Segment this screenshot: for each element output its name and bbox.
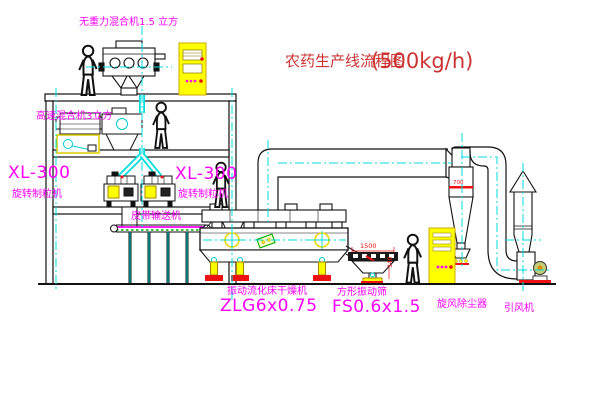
label-second-mixer: 高速混合机3立方 [36, 109, 112, 122]
dim-sieve-height: 340 [387, 256, 394, 268]
worker-figure [153, 103, 169, 148]
process-flow-diagram: 农药生产线流程图 (500kg/h) 无重力混合机1.5 立方 高速混合机3立方… [0, 0, 600, 403]
label-granulator-right-model: XL-300 [175, 164, 237, 184]
exhaust-duct [258, 149, 462, 210]
page-title-capacity: (500kg/h) [371, 49, 473, 73]
worker-figure [404, 235, 421, 283]
label-sieve-model: FS0.6x1.5 [332, 297, 421, 317]
label-top-mixer: 无重力混合机1.5 立方 [79, 15, 178, 28]
label-granulator-right-name: 旋转制粒机 [178, 187, 228, 200]
control-cabinet-lower [429, 228, 455, 284]
diagram-canvas: 农药生产线流程图 (500kg/h) 无重力混合机1.5 立方 高速混合机3立方… [0, 0, 600, 403]
label-granulator-left-name: 旋转制粒机 [12, 187, 62, 200]
label-belt-conveyor: 皮带输送机 [131, 209, 181, 222]
label-dryer-model: ZLG6x0.75 [220, 296, 318, 316]
induced-draft-fan [517, 252, 551, 284]
fluid-bed-dryer [200, 204, 360, 281]
granulator-left [104, 172, 138, 207]
dim-sieve-length: 1500 [360, 242, 377, 250]
granulator-right [141, 172, 175, 207]
label-cyclone: 旋风除尘器 [437, 297, 487, 310]
gravity-free-mixer [99, 41, 165, 95]
worker-figure [79, 46, 96, 95]
dim-cyclone: 700 [453, 180, 464, 186]
label-granulator-left-model: XL-300 [8, 163, 70, 183]
label-fan: 引风机 [504, 301, 534, 314]
control-cabinet-top [179, 43, 206, 95]
